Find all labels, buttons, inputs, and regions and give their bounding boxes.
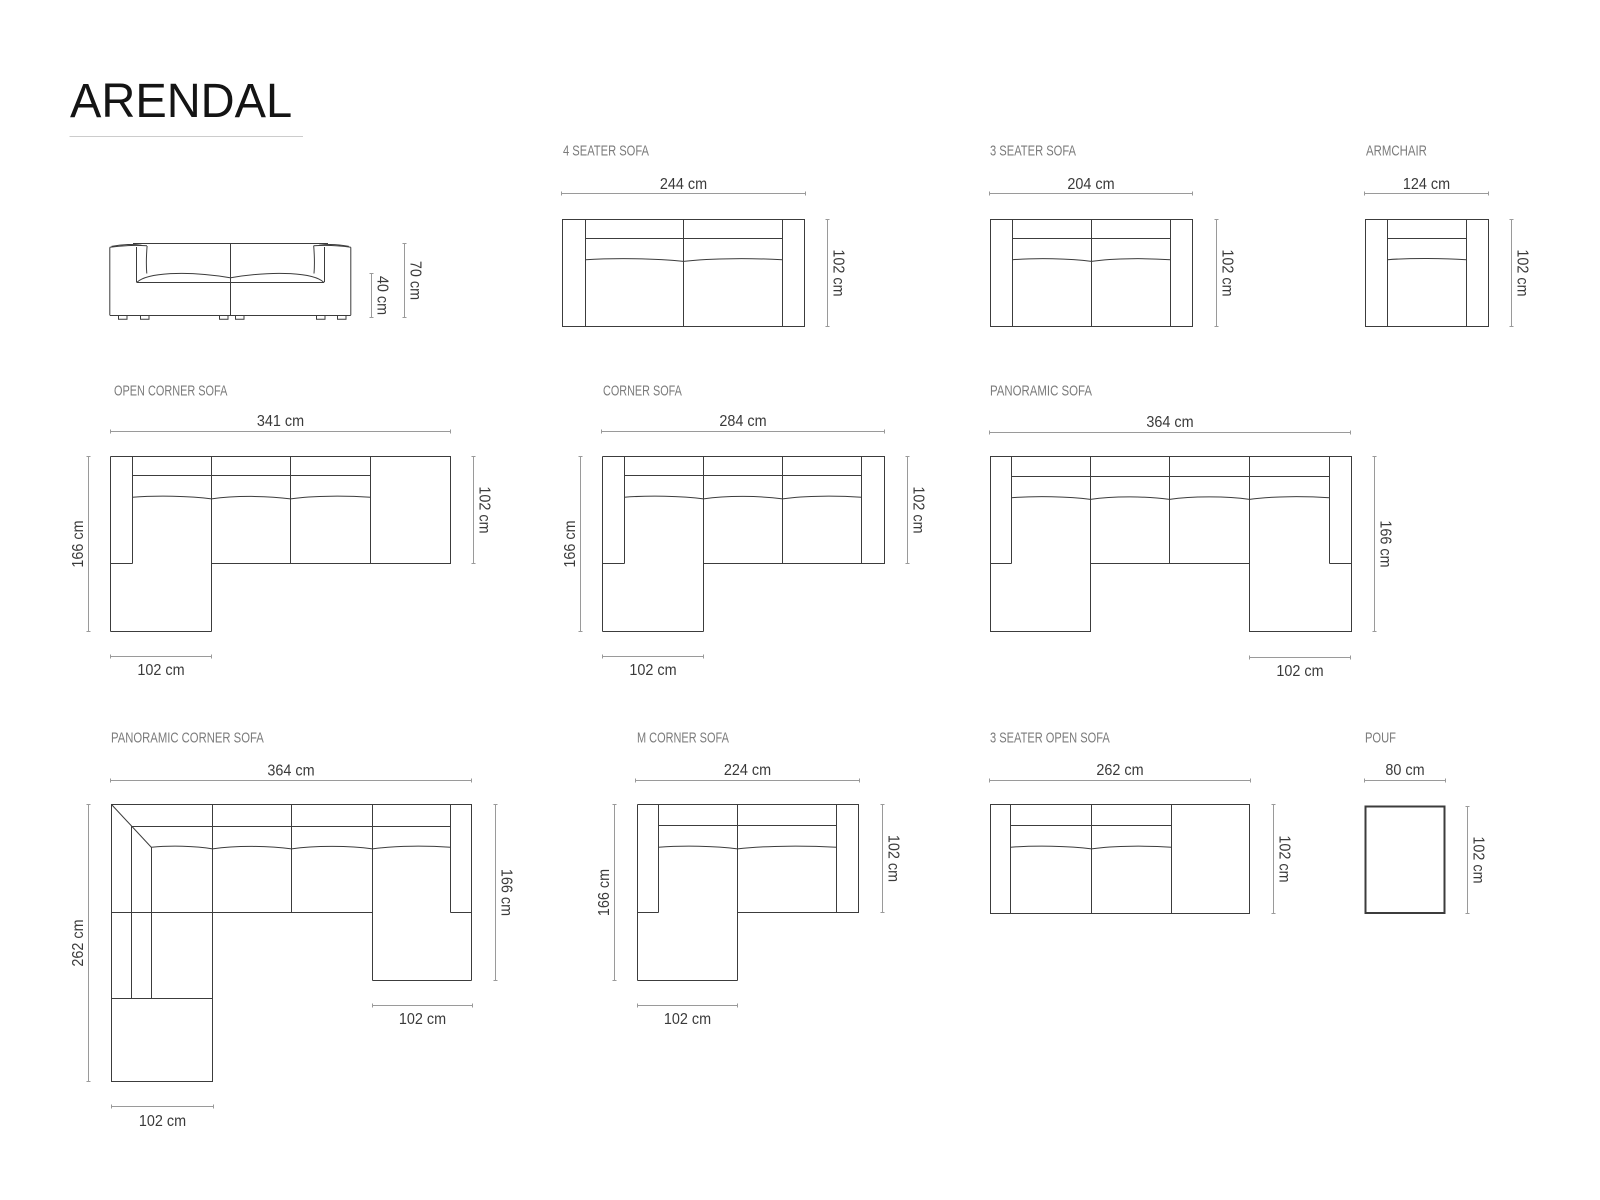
svg-text:102 cm: 102 cm (1275, 835, 1293, 882)
svg-text:102 cm: 102 cm (1513, 249, 1531, 296)
svg-text:341 cm: 341 cm (257, 412, 304, 430)
svg-text:102 cm: 102 cm (1276, 662, 1323, 680)
svg-text:ARENDAL: ARENDAL (70, 75, 292, 129)
svg-text:ARMCHAIR: ARMCHAIR (1366, 142, 1427, 159)
svg-text:4 SEATER SOFA: 4 SEATER SOFA (563, 142, 649, 159)
svg-text:102 cm: 102 cm (137, 661, 184, 679)
svg-text:PANORAMIC SOFA: PANORAMIC SOFA (990, 382, 1092, 399)
svg-text:166 cm: 166 cm (497, 869, 515, 916)
svg-text:262 cm: 262 cm (69, 919, 87, 966)
svg-text:3 SEATER SOFA: 3 SEATER SOFA (990, 142, 1076, 159)
svg-text:80 cm: 80 cm (1385, 761, 1424, 779)
svg-text:166 cm: 166 cm (595, 869, 613, 916)
svg-text:40 cm: 40 cm (373, 276, 391, 315)
svg-text:OPEN CORNER SOFA: OPEN CORNER SOFA (114, 382, 228, 399)
svg-text:POUF: POUF (1365, 729, 1396, 746)
svg-text:166 cm: 166 cm (561, 520, 579, 567)
svg-text:102 cm: 102 cm (1469, 836, 1487, 883)
svg-text:102 cm: 102 cm (399, 1010, 446, 1028)
svg-text:124 cm: 124 cm (1403, 175, 1450, 193)
svg-text:244 cm: 244 cm (660, 175, 707, 193)
svg-text:262 cm: 262 cm (1096, 761, 1143, 779)
svg-text:M CORNER SOFA: M CORNER SOFA (637, 729, 729, 746)
svg-text:102 cm: 102 cm (664, 1010, 711, 1028)
svg-text:102 cm: 102 cm (829, 249, 847, 296)
svg-text:70 cm: 70 cm (406, 261, 424, 300)
svg-text:204 cm: 204 cm (1067, 175, 1114, 193)
svg-text:166 cm: 166 cm (69, 520, 87, 567)
svg-text:102 cm: 102 cm (909, 486, 927, 533)
svg-text:364 cm: 364 cm (267, 762, 314, 780)
svg-text:284 cm: 284 cm (719, 412, 766, 430)
svg-text:102 cm: 102 cm (629, 661, 676, 679)
svg-text:3 SEATER OPEN SOFA: 3 SEATER OPEN SOFA (990, 729, 1110, 746)
svg-text:CORNER SOFA: CORNER SOFA (603, 382, 682, 399)
svg-text:102 cm: 102 cm (1218, 249, 1236, 296)
svg-text:166 cm: 166 cm (1376, 520, 1394, 567)
svg-text:224 cm: 224 cm (724, 761, 771, 779)
svg-text:102 cm: 102 cm (475, 486, 493, 533)
svg-text:PANORAMIC CORNER SOFA: PANORAMIC CORNER SOFA (111, 729, 264, 746)
svg-text:102 cm: 102 cm (884, 835, 902, 882)
svg-text:102 cm: 102 cm (139, 1112, 186, 1130)
svg-text:364 cm: 364 cm (1146, 413, 1193, 431)
